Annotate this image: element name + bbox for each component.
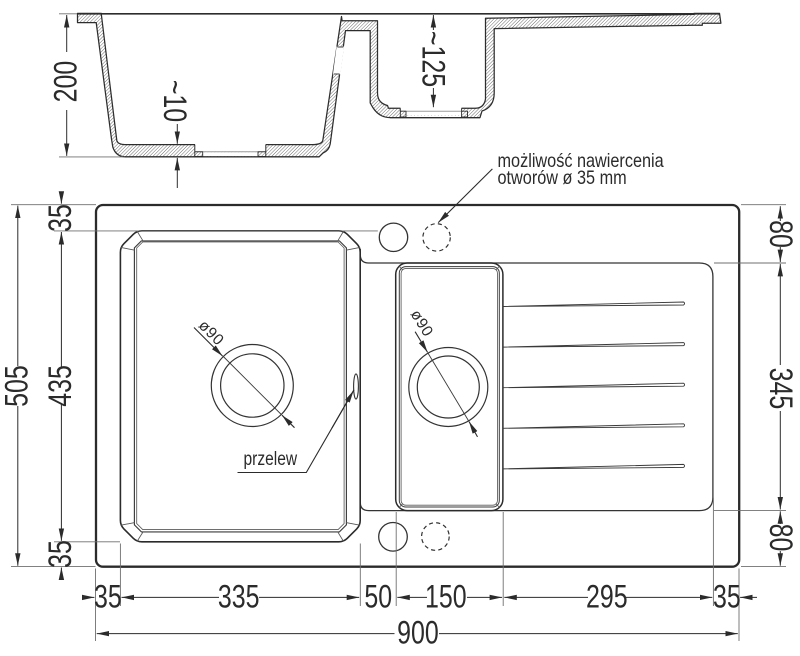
svg-text:150: 150 xyxy=(425,580,467,616)
svg-text:200: 200 xyxy=(49,61,85,103)
svg-text:~125: ~125 xyxy=(415,31,451,87)
svg-text:~10: ~10 xyxy=(156,80,192,122)
svg-text:335: 335 xyxy=(218,580,260,616)
svg-text:435: 435 xyxy=(43,365,79,407)
svg-text:900: 900 xyxy=(397,616,439,652)
svg-text:345: 345 xyxy=(762,368,798,410)
svg-text:przelew: przelew xyxy=(244,447,298,469)
svg-text:80: 80 xyxy=(762,220,798,248)
svg-text:295: 295 xyxy=(586,580,628,616)
svg-text:35: 35 xyxy=(713,580,741,616)
svg-text:505: 505 xyxy=(0,365,35,407)
svg-text:ø90: ø90 xyxy=(407,307,437,340)
svg-text:35: 35 xyxy=(94,580,122,616)
svg-text:50: 50 xyxy=(364,580,392,616)
svg-text:ø90: ø90 xyxy=(195,317,227,349)
svg-text:otworów ø 35 mm: otworów ø 35 mm xyxy=(498,167,627,188)
svg-text:35: 35 xyxy=(43,204,79,232)
svg-text:35: 35 xyxy=(43,540,79,568)
svg-text:80: 80 xyxy=(762,524,798,552)
